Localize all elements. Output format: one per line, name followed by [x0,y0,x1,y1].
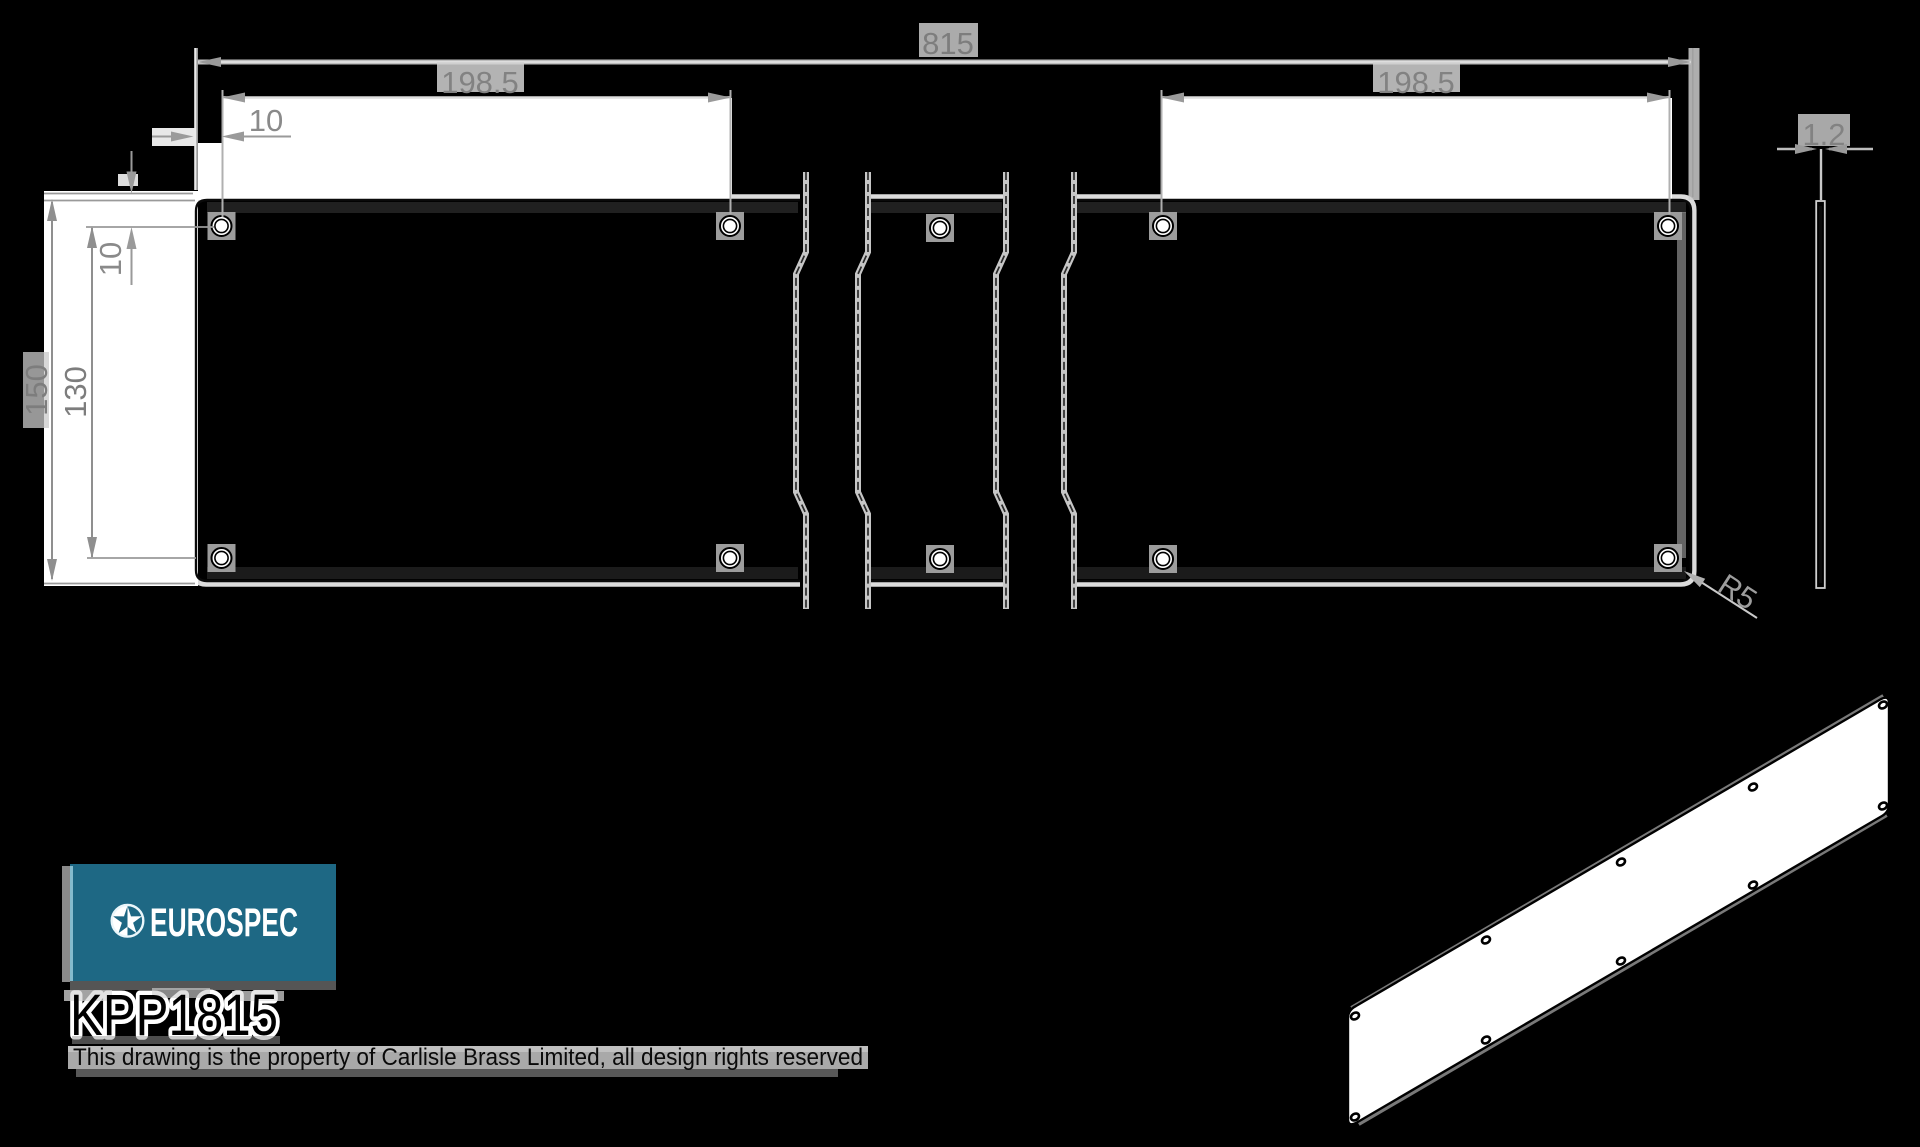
svg-text:815: 815 [922,26,974,61]
svg-text:150: 150 [19,364,54,416]
svg-text:EUROSPEC: EUROSPEC [150,901,298,945]
svg-text:198.5: 198.5 [441,65,519,100]
svg-text:198.5: 198.5 [1377,65,1455,100]
svg-text:KPP1815: KPP1815 [70,983,278,1048]
svg-text:130: 130 [58,366,93,418]
svg-text:This drawing is the property o: This drawing is the property of Carlisle… [73,1044,863,1071]
svg-text:10: 10 [249,103,283,138]
svg-text:10: 10 [93,242,128,276]
